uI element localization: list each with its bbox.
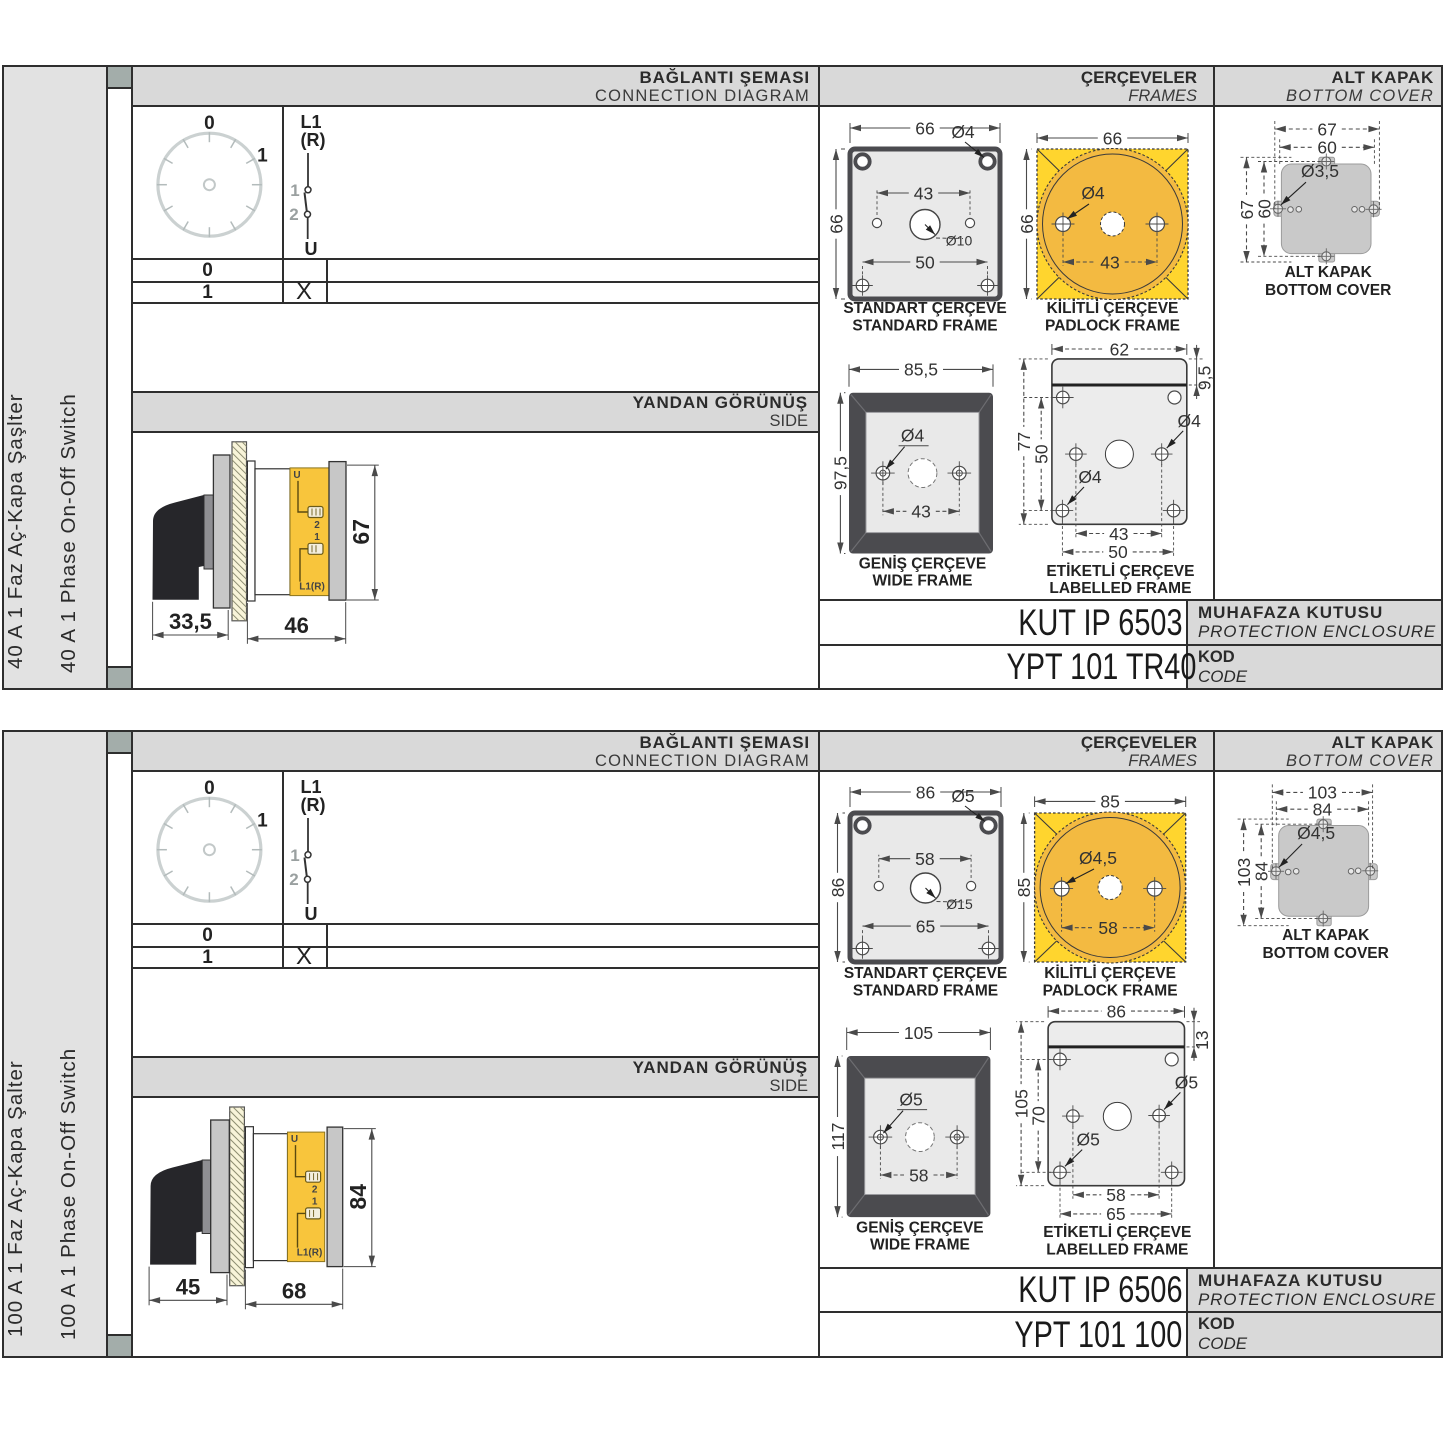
svg-text:Ø5: Ø5 (899, 1090, 922, 1110)
svg-text:ALT KAPAK: ALT KAPAK (1282, 927, 1370, 944)
svg-text:U: U (305, 239, 318, 259)
svg-text:13: 13 (1192, 1031, 1212, 1050)
svg-text:2: 2 (289, 870, 298, 889)
svg-text:LABELLED FRAME: LABELLED FRAME (1046, 1241, 1188, 1258)
svg-text:Ø10: Ø10 (946, 233, 973, 249)
svg-text:50: 50 (915, 252, 935, 272)
svg-text:84: 84 (1313, 800, 1333, 820)
svg-text:43: 43 (1100, 252, 1119, 272)
svg-text:KİLİTLİ ÇERÇEVE: KİLİTLİ ÇERÇEVE (1044, 965, 1176, 982)
svg-text:58: 58 (909, 1165, 928, 1185)
svg-text:66: 66 (1103, 128, 1122, 148)
svg-text:86: 86 (828, 878, 848, 897)
svg-text:U: U (291, 1134, 298, 1145)
svg-text:67: 67 (348, 519, 374, 545)
svg-text:Ø4: Ø4 (1081, 183, 1105, 203)
svg-text:1: 1 (314, 532, 320, 543)
svg-text:STANDARD FRAME: STANDARD FRAME (852, 318, 997, 335)
svg-text:2: 2 (312, 1185, 318, 1196)
svg-text:85,5: 85,5 (904, 360, 938, 380)
svg-text:60: 60 (1317, 138, 1337, 158)
svg-text:PADLOCK FRAME: PADLOCK FRAME (1045, 318, 1180, 335)
svg-text:65: 65 (1106, 1204, 1125, 1224)
svg-text:L1: L1 (300, 777, 321, 797)
svg-text:WIDE FRAME: WIDE FRAME (873, 572, 973, 589)
svg-text:66: 66 (915, 118, 934, 138)
svg-text:Ø4: Ø4 (901, 426, 925, 446)
svg-text:50: 50 (1108, 542, 1128, 562)
svg-text:86: 86 (1107, 1001, 1126, 1021)
svg-text:(R): (R) (301, 130, 326, 150)
svg-text:BOTTOM COVER: BOTTOM COVER (1263, 945, 1389, 962)
svg-text:1: 1 (312, 1196, 318, 1207)
svg-text:PADLOCK FRAME: PADLOCK FRAME (1043, 983, 1178, 1000)
svg-text:58: 58 (1106, 1185, 1125, 1205)
svg-text:1: 1 (290, 846, 299, 865)
svg-text:86: 86 (916, 782, 935, 802)
svg-text:STANDART ÇERÇEVE: STANDART ÇERÇEVE (843, 300, 1006, 317)
svg-text:Ø4: Ø4 (1178, 411, 1202, 431)
svg-text:66: 66 (1017, 214, 1037, 233)
svg-text:Ø15: Ø15 (946, 896, 973, 912)
svg-text:84: 84 (345, 1184, 371, 1210)
svg-text:GENİŞ ÇERÇEVE: GENİŞ ÇERÇEVE (859, 555, 986, 572)
svg-text:1: 1 (257, 811, 268, 832)
svg-text:L1(R): L1(R) (297, 1248, 323, 1259)
svg-text:KİLİTLİ ÇERÇEVE: KİLİTLİ ÇERÇEVE (1047, 300, 1179, 317)
svg-text:LABELLED FRAME: LABELLED FRAME (1049, 580, 1191, 597)
svg-text:Ø4: Ø4 (1078, 467, 1102, 487)
svg-text:U: U (293, 470, 300, 481)
svg-text:58: 58 (915, 849, 934, 869)
svg-text:STANDART ÇERÇEVE: STANDART ÇERÇEVE (844, 965, 1007, 982)
svg-text:ALT KAPAK: ALT KAPAK (1285, 264, 1373, 281)
svg-text:43: 43 (1109, 524, 1128, 544)
svg-text:1: 1 (257, 146, 268, 167)
svg-text:U: U (305, 904, 318, 924)
svg-text:GENİŞ ÇERÇEVE: GENİŞ ÇERÇEVE (856, 1220, 983, 1237)
svg-text:Ø5: Ø5 (1077, 1130, 1100, 1150)
svg-text:117: 117 (828, 1123, 848, 1151)
svg-text:58: 58 (1098, 918, 1117, 938)
svg-text:Ø5: Ø5 (1175, 1072, 1198, 1092)
svg-text:84: 84 (1252, 861, 1272, 881)
svg-text:Ø5: Ø5 (951, 786, 974, 806)
svg-text:Ø4,5: Ø4,5 (1297, 823, 1335, 843)
svg-text:67: 67 (1317, 119, 1336, 139)
svg-text:46: 46 (284, 613, 308, 638)
svg-text:L1(R): L1(R) (299, 582, 325, 593)
svg-text:43: 43 (911, 502, 930, 522)
svg-text:33,5: 33,5 (169, 609, 212, 634)
svg-text:45: 45 (176, 1274, 200, 1299)
svg-text:1: 1 (290, 181, 299, 200)
svg-text:97,5: 97,5 (831, 456, 851, 490)
svg-text:L1: L1 (300, 112, 321, 132)
svg-text:85: 85 (1100, 792, 1119, 812)
svg-text:0: 0 (204, 113, 215, 134)
svg-text:ETİKETLİ ÇERÇEVE: ETİKETLİ ÇERÇEVE (1046, 563, 1194, 580)
svg-text:(R): (R) (301, 795, 326, 815)
svg-text:43: 43 (914, 183, 933, 203)
svg-text:50: 50 (1032, 444, 1052, 464)
svg-text:60: 60 (1254, 199, 1274, 219)
svg-text:STANDARD FRAME: STANDARD FRAME (853, 983, 998, 1000)
svg-text:0: 0 (204, 778, 215, 799)
svg-text:Ø4: Ø4 (951, 122, 975, 142)
svg-text:70: 70 (1029, 1106, 1049, 1126)
svg-text:66: 66 (826, 214, 846, 233)
svg-text:65: 65 (916, 916, 935, 936)
svg-text:85: 85 (1014, 878, 1034, 897)
svg-text:9,5: 9,5 (1195, 366, 1213, 390)
svg-text:Ø4,5: Ø4,5 (1079, 848, 1117, 868)
svg-text:BOTTOM COVER: BOTTOM COVER (1265, 282, 1391, 299)
svg-text:Ø3,5: Ø3,5 (1301, 161, 1339, 181)
svg-text:105: 105 (904, 1023, 933, 1043)
svg-text:68: 68 (282, 1278, 306, 1303)
svg-text:2: 2 (289, 205, 298, 224)
svg-text:62: 62 (1110, 339, 1129, 359)
svg-text:WIDE FRAME: WIDE FRAME (870, 1237, 970, 1254)
svg-text:2: 2 (314, 520, 320, 531)
svg-text:ETİKETLİ ÇERÇEVE: ETİKETLİ ÇERÇEVE (1043, 1224, 1191, 1241)
